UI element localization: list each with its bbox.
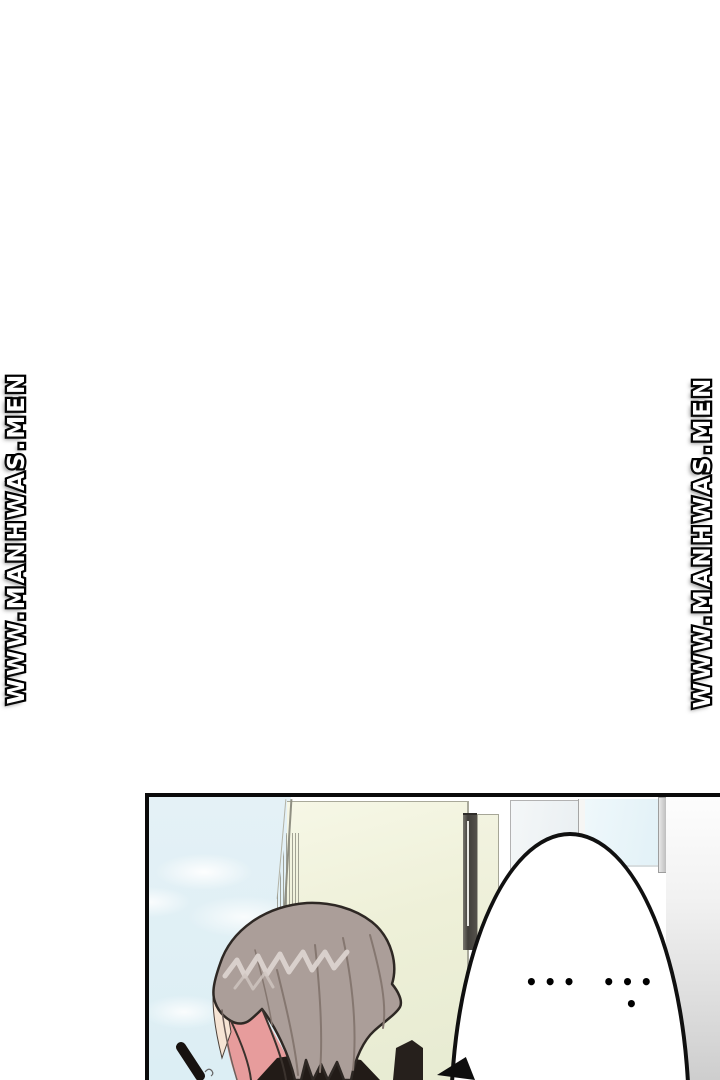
watermark-right: WWW.MANHWAS.MEN [685,362,720,722]
comic-panel: ••• ••• • [145,793,720,1080]
character-shoulder [393,1040,423,1080]
speech-bubble-dots: ••• ••• [525,975,659,989]
door-dark-edge [463,813,477,950]
manhwa-page: WWW.MANHWAS.MEN WWW.MANHWAS.MEN [0,0,720,1080]
character [165,890,435,1080]
door-highlight-line [467,821,469,926]
small-curl-mark [205,1069,213,1076]
speech-bubble-period: • [625,997,638,1011]
watermark-left: WWW.MANHWAS.MEN [0,358,35,718]
phone-rod [181,1047,200,1076]
